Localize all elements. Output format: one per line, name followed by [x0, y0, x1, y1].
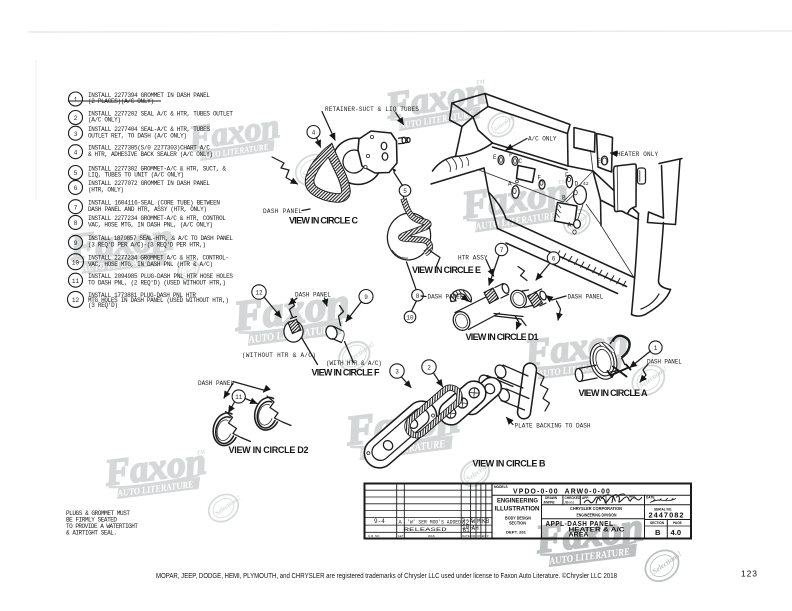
svg-text:(3 REQ'D PER A/C)-(3 REQ'D PER: (3 REQ'D PER A/C)-(3 REQ'D PER HTR,): [88, 242, 206, 249]
svg-text:A: A: [508, 181, 512, 188]
svg-text:P: P: [487, 534, 489, 538]
svg-text:6: 6: [74, 185, 78, 192]
svg-text:F: F: [509, 152, 513, 159]
svg-text:EN: EN: [482, 534, 486, 538]
svg-text:9: 9: [364, 294, 368, 301]
svg-text:DASH PANEL: DASH PANEL: [428, 294, 464, 301]
svg-text:PLATE BACKING TO DASH: PLATE BACKING TO DASH: [515, 423, 591, 430]
svg-text:/42: /42: [580, 181, 589, 187]
svg-text:10: 10: [72, 259, 80, 266]
svg-text:M: M: [477, 518, 481, 525]
svg-text:HTR ASSY: HTR ASSY: [458, 255, 488, 262]
svg-text:RETAINER-SUCT & LIQ TUBES: RETAINER-SUCT & LIQ TUBES: [325, 106, 419, 113]
svg-text:VIEW IN CIRCLE C: VIEW IN CIRCLE C: [289, 216, 359, 226]
svg-text:(WITHOUT HTR & A/C): (WITHOUT HTR & A/C): [242, 352, 316, 359]
svg-text:OUTLET RET, TO DASH (A/C ONLY): OUTLET RET, TO DASH (A/C ONLY): [88, 132, 187, 139]
svg-text:AREA: AREA: [569, 532, 589, 539]
svg-text:C.R. NO.: C.R. NO.: [368, 534, 380, 538]
svg-text:A/C ONLY: A/C ONLY: [528, 136, 557, 143]
svg-text:8: 8: [416, 293, 420, 300]
svg-text:C: C: [519, 158, 523, 165]
svg-text:DASH PANEL AND HTR, ASSY (HTR,: DASH PANEL AND HTR, ASSY (HTR, ONLY): [88, 206, 207, 213]
svg-text:KB: KB: [482, 518, 490, 525]
svg-text:VIEW IN CIRCLE A: VIEW IN CIRCLE A: [579, 388, 649, 398]
svg-text:2447082: 2447082: [649, 511, 685, 520]
svg-text:'W' SER MOD'S ADDED: 'W' SER MOD'S ADDED: [407, 520, 461, 526]
svg-text:3: 3: [74, 131, 78, 138]
svg-text:11: 11: [235, 394, 243, 401]
svg-text:VIEW IN CIRCLE D2: VIEW IN CIRCLE D2: [229, 445, 309, 455]
svg-text:1: 1: [74, 97, 78, 104]
svg-text:VAC, HOSE MTG, IN DASH PNL (HT: VAC, HOSE MTG, IN DASH PNL (HTR & A/C): [88, 261, 213, 268]
svg-text:E: E: [493, 154, 497, 161]
svg-text:4.0: 4.0: [671, 528, 682, 537]
svg-text:DRAWN: DRAWN: [545, 496, 558, 500]
svg-text:1: 1: [654, 345, 658, 352]
svg-text:DR: DR: [472, 534, 476, 538]
svg-text:B: B: [655, 528, 661, 537]
svg-text:DATE: DATE: [462, 534, 470, 538]
svg-text:LET: LET: [398, 534, 404, 538]
svg-text:HEATER ONLY: HEATER ONLY: [617, 151, 658, 158]
svg-text:DASH PANEL: DASH PANEL: [198, 380, 234, 387]
svg-text:8: 8: [74, 220, 78, 227]
svg-text:DASH PANEL: DASH PANEL: [263, 208, 302, 215]
svg-text:10: 10: [406, 315, 414, 322]
svg-text:9: 9: [74, 240, 78, 247]
svg-text:CHECKED: CHECKED: [565, 496, 581, 500]
svg-text:A: A: [568, 222, 572, 229]
svg-text:TO DASH PNL, (2 REQ'D) (USED W: TO DASH PNL, (2 REQ'D) (USED WITHOUT HTR…: [88, 279, 226, 286]
svg-text:DASH PANEL: DASH PANEL: [295, 292, 331, 299]
svg-text:& HTR, ADHESIVE BACK SEALER (A: & HTR, ADHESIVE BACK SEALER (A/C ONLY): [88, 151, 213, 158]
svg-text:MODELS: MODELS: [494, 485, 508, 489]
svg-text:ILLUSTRATION: ILLUSTRATION: [495, 506, 540, 513]
svg-text:TM: TM: [196, 449, 206, 456]
svg-text:B: B: [562, 195, 566, 202]
svg-text:61: 61: [463, 527, 471, 534]
svg-text:MOPAR, JEEP, DODGE, HEMI, PLYM: MOPAR, JEEP, DODGE, HEMI, PLYMOUTH, and …: [156, 572, 617, 580]
svg-text:SECTION: SECTION: [509, 521, 526, 526]
svg-text:DASH PANEL: DASH PANEL: [647, 359, 682, 366]
svg-text:(2 PLACES)(A/C ONLY): (2 PLACES)(A/C ONLY): [88, 98, 154, 105]
svg-text:E: E: [597, 158, 601, 165]
svg-text:F: F: [538, 175, 542, 182]
svg-text:SECTION: SECTION: [650, 521, 665, 525]
svg-text:6: 6: [552, 256, 556, 263]
svg-text:DASH PANEL: DASH PANEL: [568, 294, 604, 301]
svg-text:APP.: APP.: [582, 496, 589, 500]
svg-text:ENGINEERING DIVISION: ENGINEERING DIVISION: [577, 513, 617, 518]
svg-text:VIEW IN CIRCLE F: VIEW IN CIRCLE F: [312, 368, 381, 378]
svg-text:12: 12: [72, 297, 80, 304]
svg-text:3: 3: [395, 369, 399, 376]
svg-text:2: 2: [427, 365, 431, 372]
svg-text:DATE: DATE: [646, 496, 654, 500]
svg-text:VAC, HOSE MTG, IN DASH PNL, (A: VAC, HOSE MTG, IN DASH PNL, (A/C ONLY): [88, 222, 213, 229]
svg-text:123: 123: [741, 569, 758, 579]
svg-text:5: 5: [403, 188, 407, 195]
svg-text:VIEW IN CIRCLE D1: VIEW IN CIRCLE D1: [466, 332, 539, 342]
svg-text:PAGE: PAGE: [673, 521, 682, 525]
svg-text:12: 12: [255, 290, 263, 297]
svg-text:DEPT. 261: DEPT. 261: [506, 530, 527, 535]
svg-text:VPDO-0-00 ARW0-0-00: VPDO-0-00 ARW0-0-00: [513, 487, 611, 496]
svg-text:VIEW IN CIRCLE B: VIEW IN CIRCLE B: [473, 459, 547, 469]
svg-text:LIQ, TUBES TO UNIT (A/C ONLY): LIQ, TUBES TO UNIT (A/C ONLY): [88, 172, 184, 179]
svg-text:AH: AH: [472, 525, 480, 532]
svg-text:11: 11: [72, 278, 80, 285]
svg-text:A: A: [399, 520, 403, 526]
svg-text:F: F: [565, 172, 569, 179]
svg-text:5: 5: [74, 170, 78, 177]
svg-text:2: 2: [74, 115, 78, 122]
svg-text:D: D: [575, 181, 579, 188]
svg-text:ENGINEERING: ENGINEERING: [497, 498, 538, 505]
svg-text:7: 7: [74, 204, 78, 211]
svg-text:WAS: WAS: [428, 534, 435, 538]
svg-text:RELEASED: RELEASED: [404, 527, 447, 533]
svg-text:(A/C ONLY): (A/C ONLY): [88, 117, 121, 124]
svg-text:9-4: 9-4: [374, 518, 385, 525]
svg-text:4: 4: [74, 149, 78, 156]
svg-text:(HTR, ONLY): (HTR, ONLY): [88, 187, 124, 194]
svg-text:MWPE: MWPE: [544, 501, 556, 505]
svg-text:CK: CK: [477, 534, 481, 538]
svg-text:& AIRTIGHT SEAL.: & AIRTIGHT SEAL.: [66, 529, 117, 536]
svg-text:CHRYSLER CORPORATION: CHRYSLER CORPORATION: [570, 506, 623, 511]
svg-text:(WITH HTR & A/C): (WITH HTR & A/C): [326, 360, 382, 367]
svg-text:JBone: JBone: [563, 501, 574, 505]
svg-text:4: 4: [312, 130, 316, 137]
svg-text:VIEW IN CIRCLE E: VIEW IN CIRCLE E: [412, 265, 481, 275]
svg-text:7: 7: [500, 247, 504, 254]
svg-text:(3 REQ'D): (3 REQ'D): [88, 302, 118, 309]
